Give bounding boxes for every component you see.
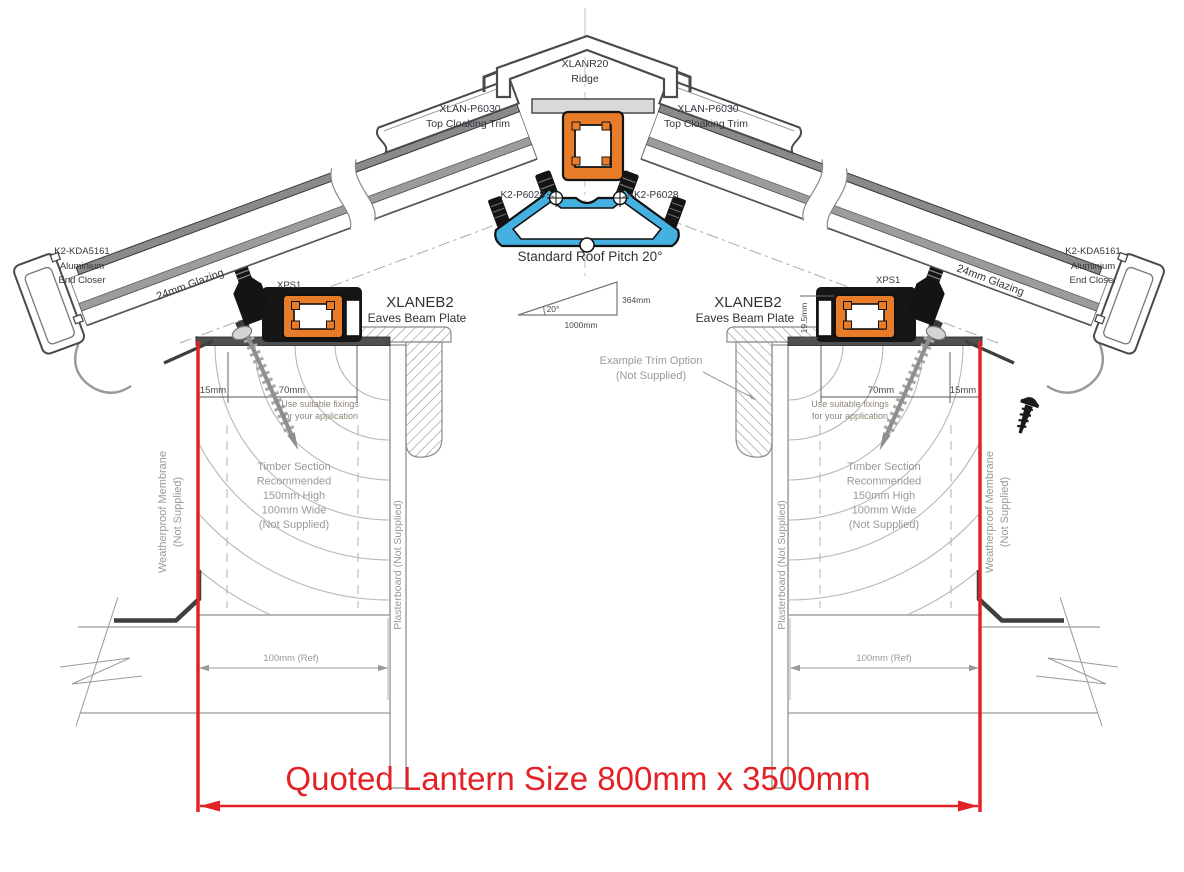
screw-icon bbox=[1011, 395, 1041, 437]
glazing-bar-fixing-right: K2-P6028 bbox=[634, 190, 679, 201]
cloaking-trim-right-model: XLAN-P6030 bbox=[677, 103, 738, 115]
membrane-note-left-1: Weatherproof Membrane bbox=[157, 451, 169, 573]
timber-note-right-5: (Not Supplied) bbox=[849, 519, 919, 531]
fixings-note-right-1: Use suitable fixings bbox=[811, 399, 889, 409]
pitch-angle: 20° bbox=[547, 304, 560, 314]
end-closer-right-2: Aluminium bbox=[1071, 261, 1115, 272]
quoted-size-label: Quoted Lantern Size 800mm x 3500mm bbox=[285, 760, 870, 797]
membrane-note-right-2: (Not Supplied) bbox=[999, 477, 1011, 547]
plasterboard-note-left: Plasterboard (Not Supplied) bbox=[392, 500, 404, 630]
cloaking-trim-right-name: Top Cloaking Trim bbox=[664, 118, 748, 130]
end-closer-right-1: K2-KDA5161 bbox=[1065, 246, 1120, 257]
timber-note-left-5: (Not Supplied) bbox=[259, 519, 329, 531]
cloaking-trim-left-model: XLAN-P6030 bbox=[439, 103, 500, 115]
dim-100-left: 100mm (Ref) bbox=[263, 653, 318, 664]
xps-right: XPS1 bbox=[876, 275, 900, 286]
pitch-run: 1000mm bbox=[564, 320, 597, 330]
left-side-assembly bbox=[11, 79, 544, 788]
ridge-model-label: XLANR20 bbox=[562, 58, 609, 70]
end-closer-right-3: End Closer bbox=[1070, 275, 1117, 286]
dim-70-left: 70mm bbox=[279, 385, 305, 396]
fixings-note-left-2: for your application bbox=[282, 411, 358, 421]
pitch-note: Standard Roof Pitch 20° bbox=[518, 249, 663, 264]
pitch-triangle bbox=[518, 282, 617, 315]
dim-19-5: 19.5mm bbox=[799, 303, 809, 334]
right-side-assembly bbox=[634, 79, 1167, 788]
dim-100-right: 100mm (Ref) bbox=[856, 653, 911, 664]
end-closer-left-1: K2-KDA5161 bbox=[54, 246, 109, 257]
eaves-beam-right-name: Eaves Beam Plate bbox=[696, 311, 795, 325]
timber-note-right-3: 150mm High bbox=[853, 490, 915, 502]
timber-note-right-1: Timber Section bbox=[847, 461, 921, 473]
xps-left: XPS1 bbox=[277, 280, 301, 291]
pitch-rise: 364mm bbox=[622, 295, 650, 305]
timber-note-right-2: Recommended bbox=[847, 476, 922, 488]
fixings-note-left-1: Use suitable fixings bbox=[281, 399, 359, 409]
membrane-note-right-1: Weatherproof Membrane bbox=[984, 451, 996, 573]
eaves-beam-left-name: Eaves Beam Plate bbox=[368, 311, 467, 325]
dim-70-right: 70mm bbox=[868, 385, 894, 396]
plasterboard-note-right: Plasterboard (Not Supplied) bbox=[776, 500, 788, 630]
glazing-bar-fixing-left: K2-P6028 bbox=[501, 190, 546, 201]
trim-option-note-2: (Not Supplied) bbox=[616, 370, 686, 382]
timber-note-left-2: Recommended bbox=[257, 476, 332, 488]
timber-note-left-4: 100mm Wide bbox=[262, 505, 327, 517]
ridge-name-label: Ridge bbox=[571, 73, 599, 85]
end-closer-left-3: End Closer bbox=[59, 275, 106, 286]
lantern-section-drawing: XLANR20 Ridge XLAN-P6030 Top Cloaking Tr… bbox=[0, 0, 1184, 872]
dim-15-left: 15mm bbox=[200, 385, 226, 396]
timber-note-left-3: 150mm High bbox=[263, 490, 325, 502]
diagram-canvas: XLANR20 Ridge XLAN-P6030 Top Cloaking Tr… bbox=[0, 0, 1184, 872]
membrane-note-left-2: (Not Supplied) bbox=[172, 477, 184, 547]
end-closer-left-2: Aluminium bbox=[60, 261, 104, 272]
eaves-beam-left-model: XLANEB2 bbox=[386, 294, 454, 311]
timber-note-left-1: Timber Section bbox=[257, 461, 331, 473]
timber-note-right-4: 100mm Wide bbox=[852, 505, 917, 517]
dim-15-right: 15mm bbox=[950, 385, 976, 396]
fixings-note-right-2: for your application bbox=[812, 411, 888, 421]
eaves-beam-right-model: XLANEB2 bbox=[714, 294, 782, 311]
cloaking-trim-left-name: Top Cloaking Trim bbox=[426, 118, 510, 130]
trim-option-note-1: Example Trim Option bbox=[600, 355, 703, 367]
